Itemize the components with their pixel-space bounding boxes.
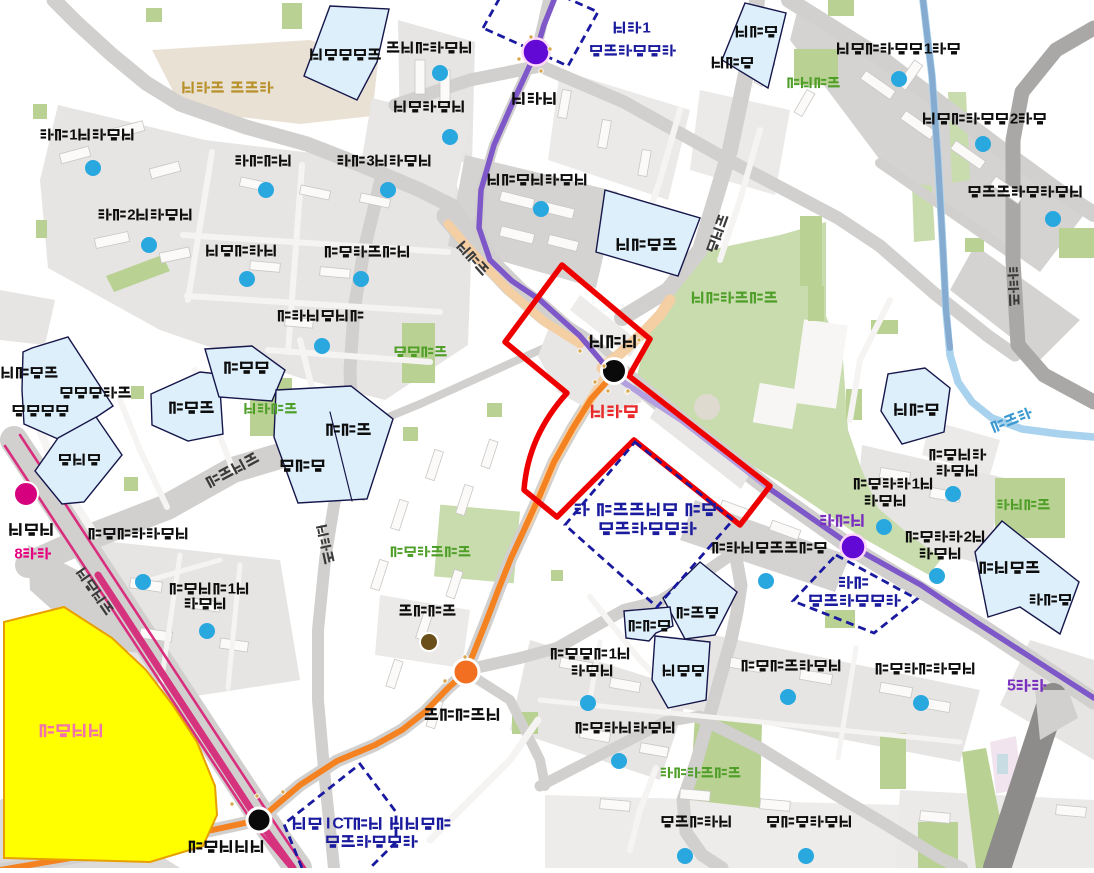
svg-text:3: 3 xyxy=(366,153,374,170)
svg-text:5: 5 xyxy=(1007,678,1016,695)
svg-text:1: 1 xyxy=(912,476,920,493)
svg-text:1: 1 xyxy=(228,581,236,598)
svg-text:2: 2 xyxy=(964,529,972,546)
svg-text:I: I xyxy=(326,816,330,833)
svg-text:1: 1 xyxy=(642,20,650,37)
svg-text:1: 1 xyxy=(609,646,617,663)
svg-text:2: 2 xyxy=(127,207,135,224)
svg-text:T: T xyxy=(343,816,353,833)
svg-text:1: 1 xyxy=(69,127,77,144)
svg-text:1: 1 xyxy=(924,41,932,58)
svg-text:2: 2 xyxy=(1010,111,1018,128)
svg-text:8: 8 xyxy=(14,546,22,563)
